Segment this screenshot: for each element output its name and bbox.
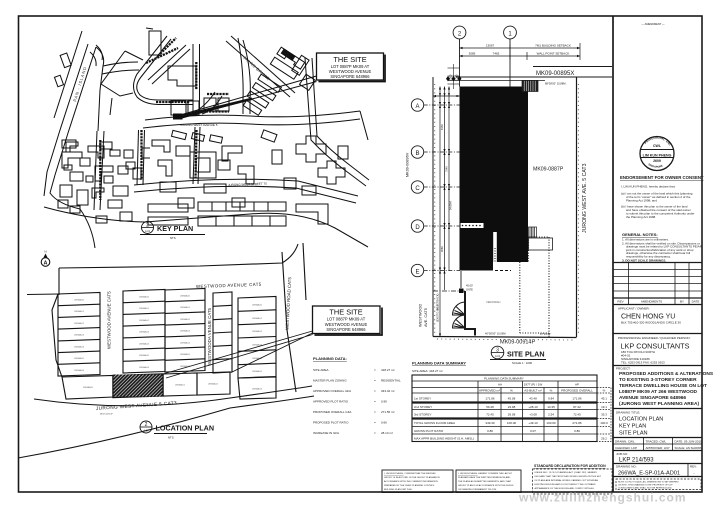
svg-text:MK09-00914P: MK09-00914P [500,340,535,346]
svg-text:PLANNING DATA:: PLANNING DATA: [313,356,347,361]
svg-text:3. DO NOT SCALE DRAWINGS.: 3. DO NOT SCALE DRAWINGS. [622,258,666,262]
svg-text:+3.08: +3.08 [529,413,537,417]
svg-text:ENDORSEMENT FOR OWNER CONSENT: ENDORSEMENT FOR OWNER CONSENT [620,175,704,180]
svg-text:87.42: 87.42 [573,405,581,409]
svg-text:19.1: 19.1 [601,405,607,409]
svg-text:CHEN HONG YU: CHEN HONG YU [621,314,675,321]
svg-text:MAX APPR BUILDING HEIGHT (S.H.: MAX APPR BUILDING HEIGHT (S.H. AMSL) [414,437,474,441]
svg-text:NTS: NTS [168,436,174,440]
svg-text:BY: BY [680,300,684,304]
svg-text:+28.10: +28.10 [528,405,538,409]
svg-text:266WA-06: 266WA-06 [139,366,150,369]
svg-text:=: = [374,379,376,383]
svg-text:PROPOSED OVERALL GFA: PROPOSED OVERALL GFA [313,410,351,414]
svg-text:B: B [415,151,419,157]
svg-text:266WA-01: 266WA-01 [252,317,263,320]
svg-text:the Planning Act 1998.: the Planning Act 1998. [626,215,656,219]
svg-text:E: E [415,269,419,275]
svg-text:1977 (P) / 1W: 1977 (P) / 1W [524,383,543,387]
svg-text:AP: AP [575,383,579,387]
svg-text:AA: AA [498,383,502,387]
svg-text:D: D [415,225,420,231]
svg-text:40°05'00" 10.06M: 40°05'00" 10.06M [485,332,505,336]
svg-text:NOTE: DO NOT SCALE. ALL DIMENS: NOTE: DO NOT SCALE. ALL DIMENSIONS TO BE… [618,481,679,484]
svg-text:87°29'45": 87°29'45" [540,332,551,336]
svg-text:DATE: 03-JUN-2010: DATE: 03-JUN-2010 [675,440,703,444]
svg-text:REV:: REV: [690,465,697,469]
svg-text:APPROVED PLOT RATIO: APPROVED PLOT RATIO [313,400,349,404]
svg-text:+49.10: +49.10 [528,421,538,425]
svg-text:266WA-00: 266WA-00 [252,304,263,307]
svg-text:PLANNING DATA SUMMARY: PLANNING DATA SUMMARY [412,361,466,366]
svg-text:PROPOSED ADDITIONS & ALTERATIO: PROPOSED ADDITIONS & ALTERATIONS [619,371,714,377]
svg-text:TO EXISTING 3-STOREY CORNER: TO EXISTING 3-STOREY CORNER [619,377,697,383]
svg-text:NTS: NTS [170,236,176,240]
svg-text:PROFESSIONAL ENGINEER / QUALIF: PROFESSIONAL ENGINEER / QUALIFIED PERSON… [618,336,691,340]
svg-text:0.66: 0.66 [381,421,387,425]
svg-text:266WA-01: 266WA-01 [139,307,150,310]
svg-text:266WA-05: 266WA-05 [74,357,85,360]
svg-text:2.54: 2.54 [548,413,554,417]
svg-text:72.45: 72.45 [486,413,494,417]
svg-text:APPROVED: LKP: APPROVED: LKP [646,446,670,450]
svg-text:I, LIM KUN PHENG, hereby decla: I, LIM KUN PHENG, hereby declare that: [621,185,676,189]
svg-text:OF DEBATING PERMANENT 753-1/34: OF DEBATING PERMANENT 753-1/34. [458,488,497,491]
svg-text:DRAWN: CWL: DRAWN: CWL [615,440,635,444]
svg-text:45.1: 45.1 [601,397,607,401]
svg-text:SITE PLAN: SITE PLAN [507,350,545,359]
svg-text:A-01: A-01 [145,230,151,233]
svg-text:=: = [374,421,376,425]
svg-text:THE PLANS AS SUBMITTED HEREWIT: THE PLANS AS SUBMITTED HEREWITH, AND THA… [458,480,512,483]
svg-text:2: 2 [145,422,148,428]
svg-text:CHECKED: LKP: CHECKED: LKP [615,446,637,450]
svg-text:1st STOREY: 1st STOREY [414,397,431,401]
svg-text:www.zulinzhengshui.com: www.zulinzhengshui.com [518,491,687,505]
svg-text:CONSULTANTS AND SHALL NOT BE R: CONSULTANTS AND SHALL NOT BE REPRODUCED. [618,487,672,490]
svg-text:23.98: 23.98 [508,405,516,409]
svg-text:0.07: 0.07 [530,429,536,433]
svg-text:GROSS PLOT RATIO: GROSS PLOT RATIO [414,429,444,433]
svg-text:266WA-04: 266WA-04 [74,345,85,348]
svg-text:266WA-03: 266WA-03 [74,334,85,337]
svg-text:LOCATION PLAN: LOCATION PLAN [156,424,215,433]
svg-text:88°38'00" 15.88M: 88°38'00" 15.88M [545,82,565,86]
svg-text:JURONG WEST AVENUE 5: JURONG WEST AVENUE 5 [180,123,218,127]
svg-text:0.86: 0.86 [487,429,493,433]
svg-text:PROPOSED PLOT RATIO: PROPOSED PLOT RATIO [313,421,349,425]
svg-text:35.3: 35.3 [601,413,607,417]
svg-text:271.55 m²: 271.55 m² [381,410,395,414]
svg-text:2609: 2609 [653,159,661,163]
svg-text:266WA-02: 266WA-02 [180,318,191,321]
svg-text:CWL: CWL [653,144,662,148]
svg-text:26.2: 26.2 [601,437,607,441]
svg-text:266WA-01: 266WA-01 [175,384,186,387]
svg-text:A-01: A-01 [143,430,149,433]
svg-text:8150: 8150 [440,124,444,130]
svg-text:INCREASE IN GFA: INCREASE IN GFA [313,431,339,435]
svg-text:BLK 755 #10-320 WOODLANDS CIRC: BLK 755 #10-320 WOODLANDS CIRCLE 30 [621,321,681,325]
svg-text:SINGAPORE 648966: SINGAPORE 648966 [330,74,370,79]
svg-text:=: = [374,400,376,404]
svg-text:WESTWOODA VENUE CAT5: WESTWOODA VENUE CAT5 [207,307,212,366]
svg-text:9060: 9060 [440,246,444,252]
svg-text:AS-BUILT m²: AS-BUILT m² [524,389,542,393]
svg-text:%: % [550,389,553,393]
svg-text:SCALE 1 : 1000: SCALE 1 : 1000 [512,361,533,365]
svg-text:MK09-00895X: MK09-00895X [536,71,574,77]
svg-text:=: = [374,368,376,372]
svg-text:266WA-02: 266WA-02 [208,383,219,386]
svg-text:LKP 214/593: LKP 214/593 [619,458,654,464]
svg-text:EXISTING BUILDING AND DO NOT A: EXISTING BUILDING AND DO NOT AFFECT THE … [535,483,596,486]
svg-text:266WA-04: 266WA-04 [139,342,150,345]
svg-text:THE SITE: THE SITE [329,308,362,317]
svg-text:LIM KUN PHENG: LIM KUN PHENG [643,154,672,158]
svg-text:A: A [415,104,419,110]
svg-text:418.27 m²: 418.27 m² [381,368,395,372]
svg-text:AVE. CAT5: AVE. CAT5 [424,308,428,327]
svg-text:72.45: 72.45 [573,413,581,417]
svg-text:PROJECT:: PROJECT: [616,367,631,371]
svg-text:=: = [374,389,376,393]
svg-text:266WA-02: 266WA-02 [252,330,263,333]
svg-text:100.0: 100.0 [600,421,608,425]
svg-text:JOB NO:: JOB NO: [616,452,628,456]
svg-text:DRAWING TITLE:: DRAWING TITLE: [616,411,640,415]
svg-text:MK09-00896V: MK09-00896V [406,152,410,177]
svg-text:LAYOUT IS IN ACCORD. IN THE LA: LAYOUT IS IN ACCORD. IN THE LAYOUT PLAN … [384,476,440,479]
svg-text:266WA-05: 266WA-05 [252,370,263,373]
svg-text:MASTER PLAN ZONING: MASTER PLAN ZONING [313,379,347,383]
svg-text:266WA-03: 266WA-03 [180,330,191,333]
svg-text:OF PLANS ARE INTERNAL WORKS CA: OF PLANS ARE INTERNAL WORKS CARRIED OUT … [535,479,599,482]
svg-text:THE SITE: THE SITE [333,55,366,64]
svg-text:TEL: 6253 0913 FAX: 6253 0913: TEL: 6253 0913 FAX: 6253 0913 [621,361,665,365]
svg-text:28.13 m²: 28.13 m² [381,431,393,435]
svg-text:171.86: 171.86 [572,397,582,401]
svg-text:N: N [44,250,46,254]
svg-text:PLANNING DATA SUMMARY: PLANNING DATA SUMMARY [484,377,524,381]
svg-text:MK09-0887P: MK09-0887P [533,167,564,173]
svg-text:3rd STOREY: 3rd STOREY [414,413,431,417]
svg-text:ACCORDANCE WITH THE CURRENT IN: ACCORDANCE WITH THE CURRENT INFORMATION [384,480,438,483]
svg-text:TRACED: CWL: TRACED: CWL [646,440,667,444]
svg-text:266WA_E-SP-01A-AD01: 266WA_E-SP-01A-AD01 [618,471,680,477]
svg-text:171.86: 171.86 [485,397,495,401]
svg-text:APPLICANT / OWNER:: APPLICANT / OWNER: [618,307,650,311]
svg-text:266WA-04: 266WA-04 [180,341,191,344]
svg-text:29.08: 29.08 [508,413,516,417]
svg-text:100.00: 100.00 [507,421,517,425]
svg-text:— AMENDMENT —: — AMENDMENT — [641,22,665,26]
svg-text:A-01: A-01 [495,355,501,358]
svg-text:14.35: 14.35 [547,405,555,409]
svg-text:KEY PLAN: KEY PLAN [157,224,193,233]
svg-text:3085: 3085 [469,52,476,56]
svg-text:271.86: 271.86 [572,421,582,425]
svg-text:WESTWOOD AVENUE CAT5: WESTWOOD AVENUE CAT5 [107,291,112,349]
svg-text:SCALE: AS SHOWN: SCALE: AS SHOWN [675,446,703,450]
svg-text:TOTAL GROSS FLOOR AREA: TOTAL GROSS FLOOR AREA [414,421,455,425]
svg-text:LAYOUT PLAN IS IN ACCORDANCE W: LAYOUT PLAN IS IN ACCORDANCE WITH THE RU… [458,484,514,487]
svg-text:266WA-03: 266WA-03 [252,388,263,391]
svg-text:VERANDAH: VERANDAH [486,300,501,304]
svg-text:266WA-06: 266WA-06 [74,369,85,372]
svg-text:PREPARED BY THE CHIEF PLANNING: PREPARED BY THE CHIEF PLANNING CONTROL [384,484,435,487]
svg-text:A: A [44,260,48,266]
svg-text:7040: 7040 [444,166,448,172]
svg-text:UNDER SEC. 12 OF S PLANNING AC: UNDER SEC. 12 OF S PLANNING ACT (CHAP. 2… [535,471,598,474]
svg-text:0.99: 0.99 [381,400,387,404]
svg-text:REV: REV [617,300,623,304]
svg-text:DECLARE THAT THE PROPOSED WORK: DECLARE THAT THE PROPOSED WORKS SHOWN ON… [535,475,602,478]
svg-text:APPROVED OVERALL GFA: APPROVED OVERALL GFA [313,389,351,393]
svg-text:81.2: 81.2 [435,304,439,310]
svg-text:AVENUE SINGAPORE 648966: AVENUE SINGAPORE 648966 [619,395,686,401]
svg-text:PLAN AND HAVE THE WRITTEN PERM: PLAN AND HAVE THE WRITTEN PERMISSION AND [458,476,511,479]
svg-text:9.84: 9.84 [548,397,554,401]
svg-text:ON SITE. THIS DRAWING IS THE P: ON SITE. THIS DRAWING IS THE PROPERTY OF… [618,484,673,487]
svg-text:LOCATION PLAN: LOCATION PLAN [619,417,663,423]
svg-text:59.48: 59.48 [486,405,494,409]
svg-text:TERRACE DWELLING HOUSE ON LOT: TERRACE DWELLING HOUSE ON LOT [619,383,707,389]
svg-text:266WA-03: 266WA-03 [139,331,150,334]
svg-text:266WA-01: 266WA-01 [180,306,191,309]
svg-text:DATE: DATE [692,300,700,304]
svg-text:266WA-00: 266WA-00 [139,296,150,299]
svg-text:I, LIM KUN PHENG, HEREBY CONFI: I, LIM KUN PHENG, HEREBY CONFIRM THE LAY… [458,472,513,475]
svg-text:SITE AREA: 418.27 m²: SITE AREA: 418.27 m² [412,369,443,373]
svg-text:L0887P MK09 AT 266 WESTWOOD: L0887P MK09 AT 266 WESTWOOD [619,389,698,395]
svg-text:266WA-BL: 266WA-BL [83,386,94,389]
svg-text:45.08: 45.08 [508,397,516,401]
svg-text:SINGAPORE 648966: SINGAPORE 648966 [326,327,366,332]
svg-text:JURONG WEST AVE. 5 CAT3: JURONG WEST AVE. 5 CAT3 [582,163,588,233]
svg-text:266WA-02: 266WA-02 [74,322,85,325]
svg-text:C: C [415,186,420,192]
svg-text:WESTWOOD: WESTWOOD [419,304,423,327]
svg-text:(JURONG WEST PLANNING AREA): (JURONG WEST PLANNING AREA) [619,401,699,407]
svg-text:266WA-05: 266WA-05 [139,354,150,357]
svg-text:AMENDMENTS: AMENDMENTS [641,300,662,304]
svg-text:349.30: 349.30 [485,421,495,425]
svg-text:13067: 13067 [486,44,495,48]
svg-text:2nd STOREY: 2nd STOREY [414,405,432,409]
svg-text:MK09-00914P: MK09-00914P [100,414,113,416]
svg-text:LOT 0887P MK09 AT: LOT 0887P MK09 AT [327,317,366,322]
svg-text:SITE PLAN: SITE PLAN [619,431,648,437]
svg-text:PROPOSED OVERALL: PROPOSED OVERALL [561,389,593,393]
svg-text:WALL POINT SETBACK: WALL POINT SETBACK [537,52,570,56]
svg-text:266WA-05: 266WA-05 [180,353,191,356]
svg-text:KEY PLAN: KEY PLAN [619,424,646,430]
svg-text:100.00: 100.00 [546,421,556,425]
svg-text:7M1 BUILDING SETBACK: 7M1 BUILDING SETBACK [535,44,571,48]
svg-text:Planning Act 1998; and: Planning Act 1998; and [626,199,657,203]
svg-text:266WA-00: 266WA-00 [180,295,191,298]
svg-text:266WA-00: 266WA-00 [74,299,85,302]
svg-text:SITE AREA: SITE AREA [313,368,329,372]
svg-text:343.42 m²: 343.42 m² [381,389,395,393]
svg-text:GENERAL NOTES:: GENERAL NOTES: [622,232,658,237]
svg-text:266WA-02: 266WA-02 [139,319,150,322]
svg-text:3: 3 [496,348,499,354]
svg-text:266WA-01: 266WA-01 [74,310,85,313]
svg-text:7465: 7465 [493,52,500,56]
svg-text:DRAWING NO:: DRAWING NO: [616,465,637,469]
svg-text:0.86: 0.86 [574,429,580,433]
svg-text:45.00': 45.00' [466,284,473,288]
svg-text:GATE: GATE [466,288,473,292]
svg-text:APPROVED m²: APPROVED m² [479,389,500,393]
svg-text:54.69M: 54.69M [449,201,453,210]
svg-text:=: = [374,431,376,435]
svg-text:%: % [510,389,513,393]
svg-text:RESIDENTIAL: RESIDENTIAL [381,379,401,383]
svg-text:%: % [603,389,606,393]
svg-text:=: = [374,410,376,414]
svg-text:STANDARD DECLARATION FOR ADDIT: STANDARD DECLARATION FOR ADDITION [534,464,606,468]
svg-text:I, LIM KUN PHENG, CONFIRM THAT: I, LIM KUN PHENG, CONFIRM THAT THE REVIS… [384,472,436,475]
svg-text:BUILDING PLAN UNIT 2000.: BUILDING PLAN UNIT 2000. [384,488,413,491]
svg-text:2: 2 [146,223,149,229]
svg-text:43.48: 43.48 [529,397,537,401]
